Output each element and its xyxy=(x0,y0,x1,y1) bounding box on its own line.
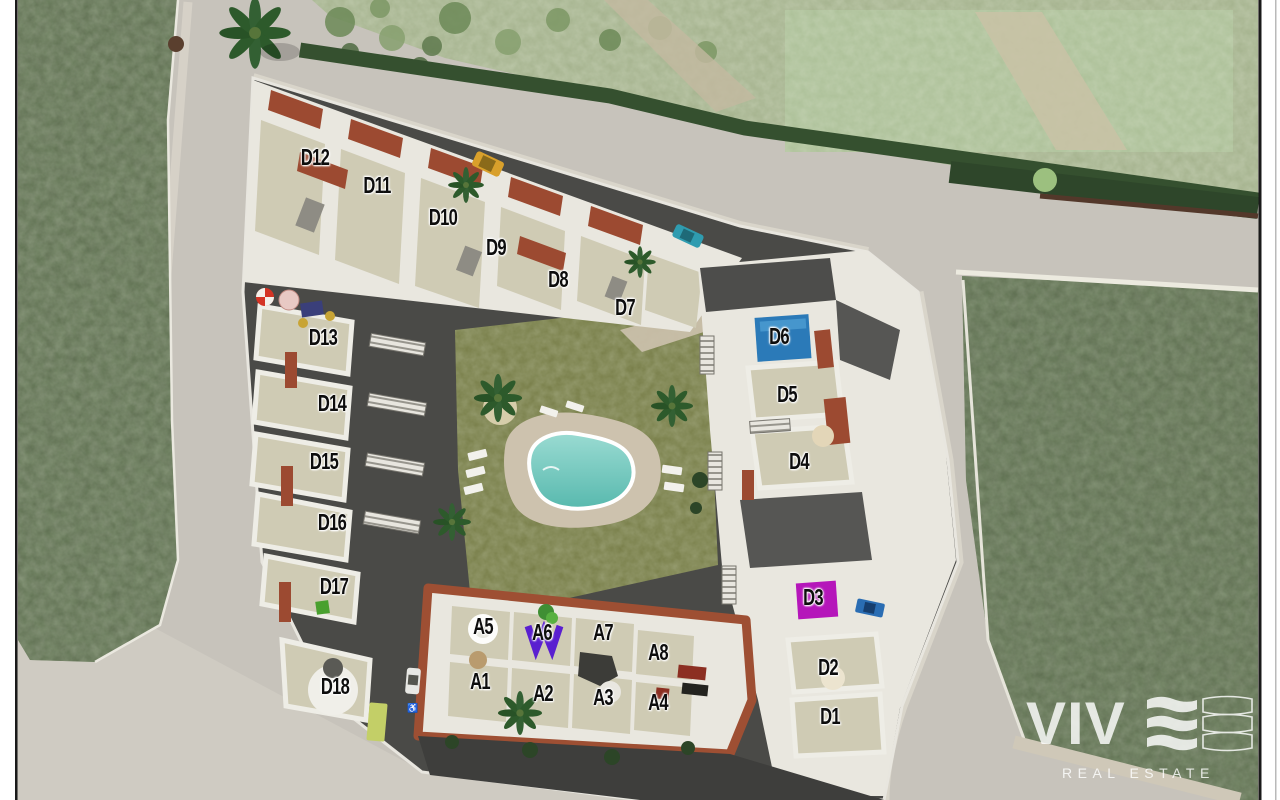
umbrella-icon xyxy=(812,425,834,447)
bush-icon xyxy=(168,36,184,52)
green-table xyxy=(315,600,330,615)
umbrella-icon xyxy=(821,666,845,690)
accessible-parking-icon: ♿ xyxy=(407,702,418,713)
pool xyxy=(504,412,661,527)
site-plan-render: ♿ VIV xyxy=(0,0,1280,800)
site-plan-screenshot: ♿ VIV xyxy=(0,0,1280,800)
courtyard xyxy=(433,302,718,600)
car-lime xyxy=(366,702,387,741)
logo-wave-e-icon xyxy=(1147,697,1197,751)
pool-water xyxy=(529,433,633,509)
logo-brand-text: VIV xyxy=(1026,690,1126,757)
logo-tagline-text: REAL ESTATE xyxy=(1062,765,1215,781)
magenta-roof-feature xyxy=(796,581,838,620)
field-top-left xyxy=(18,0,184,662)
roof-umbrella-sunburst xyxy=(468,614,498,644)
car-white xyxy=(405,667,421,694)
block-a1-a8 xyxy=(418,588,752,754)
